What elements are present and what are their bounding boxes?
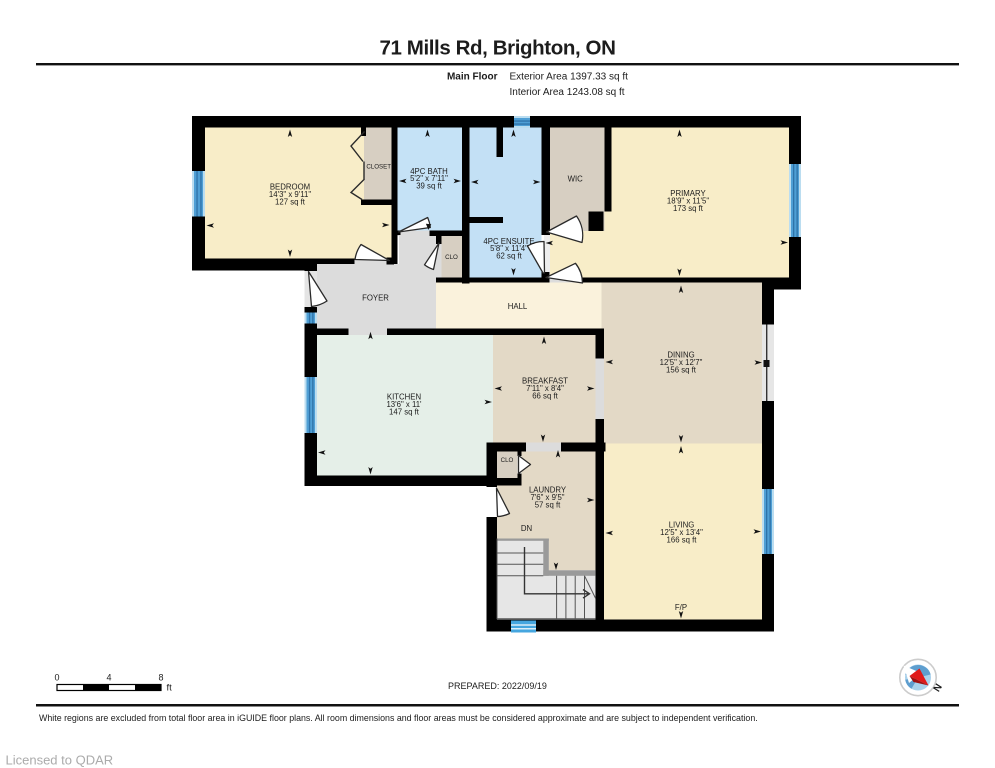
svg-text:CLOSET: CLOSET — [366, 164, 391, 171]
svg-text:166 sq ft: 166 sq ft — [667, 536, 698, 545]
svg-text:71 Mills Rd, Brighton, ON: 71 Mills Rd, Brighton, ON — [379, 37, 615, 60]
svg-text:FOYER: FOYER — [362, 294, 389, 303]
svg-text:F/P: F/P — [675, 603, 687, 612]
svg-text:Exterior Area 1397.33 sq ft: Exterior Area 1397.33 sq ft — [510, 72, 629, 83]
svg-text:8: 8 — [158, 673, 163, 683]
svg-text:White regions are excluded fro: White regions are excluded from total fl… — [39, 713, 758, 723]
svg-text:156 sq ft: 156 sq ft — [666, 366, 697, 375]
svg-text:HALL: HALL — [508, 302, 528, 311]
svg-text:57 sq ft: 57 sq ft — [535, 501, 561, 510]
svg-text:CLO: CLO — [501, 457, 514, 464]
svg-text:Licensed to QDAR: Licensed to QDAR — [6, 753, 114, 768]
svg-text:0: 0 — [54, 673, 59, 683]
svg-text:62 sq ft: 62 sq ft — [496, 252, 522, 261]
svg-text:39 sq ft: 39 sq ft — [416, 182, 442, 191]
svg-text:CLO: CLO — [445, 254, 458, 261]
svg-text:Interior Area 1243.08 sq ft: Interior Area 1243.08 sq ft — [510, 87, 625, 98]
svg-text:Main Floor: Main Floor — [447, 72, 498, 83]
svg-text:PREPARED: 2022/09/19: PREPARED: 2022/09/19 — [448, 681, 547, 691]
svg-text:66 sq ft: 66 sq ft — [532, 392, 558, 401]
svg-text:DN: DN — [521, 524, 532, 533]
svg-text:147 sq ft: 147 sq ft — [389, 408, 420, 417]
svg-text:173 sq ft: 173 sq ft — [673, 204, 704, 213]
svg-text:ft: ft — [167, 683, 173, 694]
svg-text:4: 4 — [106, 673, 111, 683]
svg-text:127 sq ft: 127 sq ft — [275, 198, 306, 207]
svg-text:WIC: WIC — [568, 175, 584, 184]
